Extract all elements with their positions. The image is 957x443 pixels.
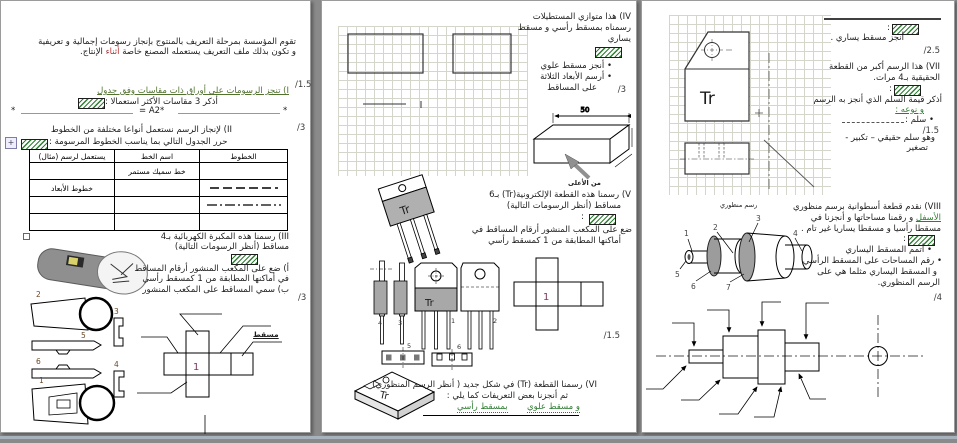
p2-parallelepiped: 50	[534, 106, 632, 178]
p1-view-5-number: 5	[81, 331, 86, 340]
p3-q7-line6: تصغير	[907, 143, 928, 153]
p3-q8-line2-highlight: الأسفل	[916, 213, 941, 223]
p3-q8-line2-text: و رقمنا مساحاتها و أنجزنا في	[811, 213, 913, 223]
p2-q5-colon: :	[581, 212, 584, 222]
p3-q7-line1: VII) هذا الرسم أكبر من القطعة	[829, 62, 940, 72]
p3-part-2: 2	[713, 223, 718, 232]
p3-part-3: 3	[756, 214, 761, 223]
table-resize-handle[interactable]	[23, 233, 30, 240]
p1-view-1: 1	[32, 376, 114, 424]
p3-tr-bottom-view	[680, 143, 754, 174]
p3-q7-line3: أذكر قيمة السلم الذي أنجز به الرسم	[813, 95, 942, 105]
p3-part-6: 6	[691, 282, 696, 291]
p3-tr-label: Tr	[699, 89, 715, 109]
p2-view-5: 5	[382, 342, 424, 368]
table-move-handle-icon[interactable]: +	[5, 137, 17, 149]
p1-view-6: 6	[32, 357, 101, 378]
p3-q7-line5: وهو سلم حقيقي – تكبير -	[845, 133, 935, 143]
col-line-name: اسم الخط	[115, 150, 200, 163]
dash-dot-line-sample	[205, 202, 283, 208]
p2-cube-front-number: 1	[543, 292, 549, 303]
p3-q8-line3: مسقطا رأسيا و مسقطا يساريا غير تام .	[801, 224, 941, 234]
p1-intro-end: الإنتاج.	[80, 47, 103, 57]
p2-view-6: 6	[432, 343, 472, 370]
p3-q8-bullet2: • رقم المساحات على المسقط الرأسي	[803, 256, 942, 266]
p1-q3-line2: مساقط (أنظر الرسومات التالية)	[175, 242, 289, 252]
p1-view-4: 4	[114, 360, 124, 397]
p3-part-1: 1	[684, 229, 689, 238]
p1-view-1-number: 1	[39, 376, 44, 385]
p1-q3-item-a2: في أماكنها المطابقة من 1 كمسقط رأسي	[142, 274, 289, 284]
p2-view-3-number: 3	[398, 319, 402, 327]
p1-intro-paragraph: تقوم المؤسسة بمرحلة التعريف بالمنتوج بإن…	[34, 37, 296, 57]
p2-q5-line1: V) رسمنا هذه القطعة الإلكترونية(Tr) بـ6	[489, 190, 631, 200]
p2-q4-bullet2: • أرسم الأبعاد الثلاثة	[540, 72, 612, 82]
p3-perspective-caption: رسم منظوري	[720, 200, 757, 210]
p2-q5-line2: مساقط (أنظر الرسومات التالية)	[507, 201, 621, 211]
p2-q5-line3: ضع على المكعب المنشور أرقام المساقط في	[472, 225, 632, 235]
cell-use-4[interactable]	[30, 214, 115, 231]
page-3: Tr	[641, 0, 955, 433]
p2-view-5-number: 5	[407, 342, 411, 350]
p3-cylinder-assembly: 1 2 3 4 5 6 7	[675, 214, 812, 292]
p1-view-2-number: 2	[36, 290, 41, 299]
p2-view-3: 3	[394, 263, 407, 344]
p1-view-4-number: 4	[114, 360, 119, 369]
p2-view-6-number: 6	[457, 343, 461, 351]
p3-scale-answer-blank[interactable]	[842, 114, 904, 123]
p1-answer-a2: = A2*	[139, 106, 164, 116]
p1-q2-prompt: حرر الجدول التالي بما يناسب الخطوط المرس…	[49, 137, 228, 147]
p3-colon-3: :	[903, 234, 906, 244]
p2-q4-line2: رسمناه بمسقط رأسي و مسقط	[518, 23, 631, 33]
table-row	[30, 214, 288, 231]
p2-grid-views	[348, 34, 511, 108]
p3-tr-front-view: Tr	[685, 32, 749, 121]
p3-shaft-views	[646, 302, 926, 417]
p2-view-1: Tr 1	[415, 263, 457, 349]
p1-cube-front-number: 1	[193, 362, 199, 373]
p1-answer-star-right: *	[283, 106, 287, 116]
p2-view-1-number: 1	[451, 317, 455, 325]
p2-view-2: 2	[461, 263, 499, 349]
p3-q8-bullet4: الرسم المنظوري.	[878, 278, 940, 288]
p2-q4-bullet3: على المساقط	[547, 83, 597, 93]
p1-mark-q2: /3	[297, 123, 305, 133]
p1-mark-q3: /3	[298, 293, 306, 303]
p1-unfolded-cube: 1	[164, 331, 253, 397]
cell-name-3[interactable]	[115, 197, 200, 214]
p3-axis-lines	[755, 53, 814, 189]
p2-unfolded-cube: 1	[514, 258, 603, 330]
p2-view-4-number: 4	[378, 319, 382, 327]
p1-mark-q1: /1.5	[295, 80, 311, 90]
p3-mark-q8: /4	[934, 293, 942, 303]
p3-mark-q7a: /2.5	[924, 46, 940, 56]
cell-sample-1[interactable]	[200, 163, 288, 180]
move-handle-glyph: +	[8, 138, 15, 147]
p1-cube-label: مسقط	[253, 330, 279, 340]
p1-intro-highlight: أثناء	[106, 47, 120, 57]
page-1: 2 5 6 1	[0, 0, 311, 433]
cell-name-4[interactable]	[115, 214, 200, 231]
p2-q6-line2: ثم أنجزنا بعض التعريفات كما يلي :	[458, 391, 568, 401]
p1-answer-blank-left[interactable]	[21, 104, 133, 114]
table-row: خطوط الأبعاد	[30, 180, 288, 197]
p1-view-3-number: 3	[114, 307, 119, 316]
p2-q6-def2: و مسقط علوي	[527, 402, 580, 413]
table-row: خط سميك مستمر	[30, 163, 288, 180]
p1-view-6-number: 6	[36, 357, 41, 366]
p2-mark-q4: /3	[618, 85, 626, 95]
p1-q1-title: I) تنجز الرسومات على أوراق ذات مقاسات وف…	[97, 86, 289, 96]
p2-q4-line3: يساري	[608, 34, 631, 44]
p2-q5-answer-hatch-icon	[589, 214, 616, 225]
device-photo	[35, 239, 150, 298]
lines-table: الخطوط اسم الخط يستعمل لرسم (مثال) خط سم…	[29, 149, 288, 231]
p2-q6-definitions: و مسقط علوي بمسقط رأسي	[457, 402, 580, 412]
p3-q8-line1: VIII) نقدم قطعة أسطوانية برسم منظوري	[793, 202, 941, 212]
p2-q6-line1: VI) رسمنا القطعة (Tr) في شكل جديد ( أنظر…	[372, 380, 597, 390]
viewer-bottom-strip	[0, 436, 957, 439]
lines-table-header-row: الخطوط اسم الخط يستعمل لرسم (مثال)	[30, 150, 288, 163]
cell-name-2[interactable]	[115, 180, 200, 197]
p3-q8-bullet1: • أتمم المسقط اليساري	[845, 245, 932, 255]
p1-view-2: 2	[31, 290, 112, 330]
p3-q7-line2: الحقيقية بـ4 مرات.	[873, 73, 940, 83]
p2-q4-bullet1: • أنجز مسقط علوي	[541, 61, 612, 71]
cell-sample-3	[200, 197, 288, 214]
p2-q4-line1: IV) هذا متوازي المستطيلات	[533, 12, 631, 22]
p1-answer-blank-right[interactable]	[178, 104, 280, 114]
cell-use-1[interactable]	[30, 163, 115, 180]
p3-colon-2: :	[889, 84, 892, 94]
col-line-use: يستعمل لرسم (مثال)	[30, 150, 115, 163]
dashed-line-sample	[208, 185, 280, 191]
p1-q2-title: II) لإنجاز الرسم نستعمل أنواعا مختلفة من…	[51, 125, 232, 135]
p2-q6-answer-line[interactable]	[423, 414, 579, 416]
cell-sample-2	[200, 180, 288, 197]
p3-colon-1: :	[887, 23, 890, 33]
p2-dim-50: 50	[581, 106, 590, 114]
p1-q3-item-a1: أ) ضع على المكعب المنشور أرقام المساقط	[134, 264, 289, 274]
p3-q8-bullet3: و المسقط اليساري مثلما هي على	[817, 267, 937, 277]
cell-name-1: خط سميك مستمر	[115, 163, 200, 180]
table-row	[30, 197, 288, 214]
p3-task-left-view: أنجز مسقط يساري .	[830, 33, 904, 43]
page-2: 50 Tr	[321, 0, 637, 433]
p2-view-1-tr: Tr	[424, 298, 435, 309]
p2-view-4: 4	[370, 261, 392, 344]
p3-part-4: 4	[793, 229, 798, 238]
p2-q6-def1: بمسقط رأسي	[457, 402, 508, 413]
p2-transistor-3d: Tr	[378, 175, 446, 265]
col-lines: الخطوط	[200, 150, 288, 163]
document-canvas: 2 5 6 1	[0, 0, 957, 443]
cell-use-2: خطوط الأبعاد	[30, 180, 115, 197]
p1-view-5: 5	[32, 331, 101, 354]
p2-view-2-number: 2	[493, 317, 497, 325]
p1-q3-item-b: ب) سمي المساقط على المكعب المنشور	[142, 285, 289, 295]
p2-q5-line4: أماكنها المطابقة من 1 كمسقط رأسي	[488, 236, 621, 246]
p1-answer-star-left: *	[11, 106, 15, 116]
p2-q4-answer-hatch-icon	[595, 47, 622, 58]
cell-use-3[interactable]	[30, 197, 115, 214]
p1-intro-text: تقوم المؤسسة بمرحلة التعريف بالمنتوج بإن…	[38, 37, 296, 57]
p1-view-3: 3	[114, 307, 123, 346]
p3-q7-scale-label: • سلم :	[905, 115, 934, 125]
p3-q8-line2: الأسفل و رقمنا مساحاتها و أنجزنا في	[811, 213, 941, 223]
p3-part-7: 7	[726, 283, 731, 292]
p2-transistor-views: 4 3 Tr 1	[370, 261, 499, 370]
p2-arrow-label: من الأعلى	[568, 178, 601, 188]
cell-sample-4[interactable]	[200, 214, 288, 231]
p2-mark-q5: /1.5	[604, 331, 620, 341]
p1-q3-line1: III) رسمنا هذه المكبرة الكهربائية بـ4	[161, 232, 289, 242]
p3-part-5: 5	[675, 270, 680, 279]
